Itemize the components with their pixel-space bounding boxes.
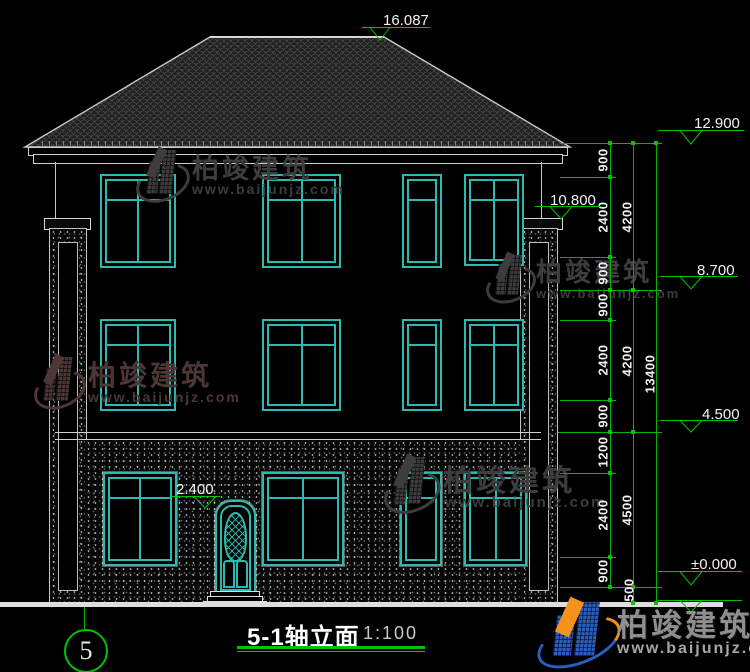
watermark-url: www.baijunjz.com <box>192 181 345 197</box>
watermark-url: www.baijunjz.com <box>88 389 241 405</box>
dim-label: 900 <box>596 404 611 427</box>
window <box>262 319 341 411</box>
dim-label: 2400 <box>596 500 611 531</box>
dim-label: 900 <box>596 293 611 316</box>
dim-label: 4200 <box>620 346 635 377</box>
watermark-url: www.baijunjz.com <box>445 494 606 511</box>
window <box>402 174 442 268</box>
left-pilaster <box>49 228 87 605</box>
dim-label: 900 <box>596 261 611 284</box>
dim-label: 900 <box>596 559 611 582</box>
entry-door <box>215 500 256 596</box>
dim-label: 4500 <box>620 495 635 526</box>
dim-label: 500 <box>622 578 637 601</box>
watermark-logo-icon <box>388 454 432 510</box>
belt-course <box>55 432 541 440</box>
window <box>464 319 524 411</box>
window <box>262 472 344 566</box>
company-url: www.baijunjz.com <box>617 640 750 658</box>
axis-number: 5 <box>80 636 93 666</box>
dim-label: 1200 <box>596 437 611 468</box>
watermark-company: 柏竣建筑 <box>88 354 212 394</box>
company-logo-icon <box>543 598 611 662</box>
title-underline <box>237 646 425 649</box>
elevation-drawing: 柏竣建筑 www.baijunjz.com 柏竣建筑 www.baijunjz.… <box>0 0 750 672</box>
window <box>103 472 177 566</box>
ground-line <box>0 602 723 607</box>
drawing-scale: 1:100 <box>363 623 418 644</box>
dim-label: 2400 <box>596 345 611 376</box>
left-wall-corner <box>55 162 56 218</box>
watermark-logo-icon <box>38 354 78 406</box>
title-underline-thin <box>237 651 425 652</box>
axis-bubble: 5 <box>64 629 108 672</box>
window <box>402 319 442 411</box>
dim-label: 4200 <box>620 202 635 233</box>
watermark-logo-icon <box>140 147 182 199</box>
dim-label: 13400 <box>643 355 658 394</box>
company-name: 柏竣建筑 <box>617 600 750 645</box>
dim-label: 900 <box>596 148 611 171</box>
axis-line <box>84 607 85 629</box>
watermark-logo-icon <box>490 252 528 300</box>
